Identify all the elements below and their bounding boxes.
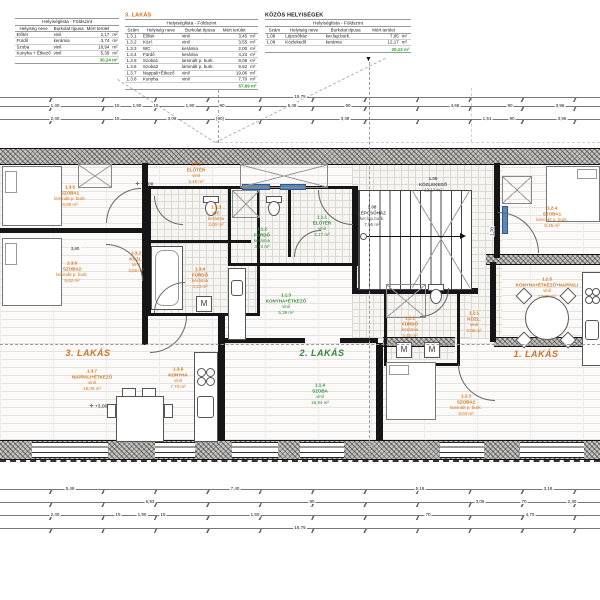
section-marker-icon: ▼ [365, 56, 372, 63]
window [300, 442, 344, 458]
floor-plan: M M M ▼ 1.3.5SZOBA1laminált p. burk.8,08… [0, 0, 600, 600]
room-label-line: 7,95 m² [358, 222, 386, 228]
chair [107, 404, 116, 418]
room-label-line: 7,70 m² [168, 384, 188, 390]
room-label-line: 3,55 m² [128, 268, 143, 274]
round-table [525, 296, 569, 340]
pillow [577, 169, 597, 179]
reference-line [215, 142, 600, 143]
chair [164, 404, 173, 418]
room-label: 1.1.3KONYHA+ÉTKEZŐvinil5,39 m² [266, 292, 306, 315]
room-label-line: 19,06 m² [72, 386, 112, 392]
apartment-separator-wall [376, 343, 383, 440]
stove-icon [206, 377, 215, 386]
bed [386, 362, 436, 420]
stove-icon [592, 296, 600, 304]
interior-wall [288, 189, 291, 257]
room-label: 1.3.7NAPPALI+ÉTKEZŐvinil19,06 m² [72, 368, 112, 391]
stove-icon [206, 368, 215, 377]
room-label: 1.09KÖZLEKEDŐ12,17 m² [419, 176, 447, 194]
interior-wall [490, 262, 496, 342]
window [440, 442, 484, 458]
bed [2, 166, 62, 226]
section-line-horizontal [0, 344, 600, 345]
pillow [5, 171, 17, 193]
wardrobe-icon [240, 164, 328, 188]
room-label: 1.3.6SZOBA2laminált p. burk.9,62 m² [56, 260, 88, 283]
window [232, 442, 278, 458]
stair-arrow-icon [460, 233, 466, 239]
room-label: 1.1.4SZOBAvinil18,94 m² [311, 382, 329, 405]
sink-icon [585, 320, 599, 340]
bed [2, 238, 62, 306]
room-label-line: 8,08 m² [54, 202, 86, 208]
dining-table [116, 396, 164, 442]
kitchen-counter [228, 268, 246, 340]
section-line [218, 90, 219, 143]
exterior-wall-mid-right [486, 254, 600, 265]
room-label-line: 8,03 m² [450, 411, 482, 417]
floorplan-page: { "drawing": { "floor_name": "Földszint"… [0, 0, 600, 600]
stair-walk-line [362, 236, 462, 237]
roof-overhang-dashed [0, 460, 600, 462]
room-label: 1.3.8KONYHAvinil7,70 m² [168, 366, 188, 389]
sink-icon [231, 280, 243, 296]
room-label: 1.1.1ELŐTÉRvinil2,17 m² [313, 214, 331, 237]
roof-edge-dashed [117, 79, 215, 143]
room-label: 1.3.4FÜRDŐkerámia4,23 m² [192, 266, 208, 289]
elevation-marker: ✛ +3,00 [89, 403, 107, 409]
pillow [5, 243, 17, 265]
room-label-line: 9,62 m² [56, 278, 88, 284]
room-label-line: 3,74 m² [254, 244, 270, 250]
apartment-title: 2. LAKÁS [299, 348, 344, 358]
interior-wall [0, 228, 148, 233]
sink-icon [197, 396, 214, 418]
room-label-line: 17,27 m² [516, 294, 578, 300]
kitchen-counter [582, 272, 600, 366]
room-label-line: 4,45 m² [402, 333, 418, 339]
shower-icon [232, 190, 260, 218]
room-label: 1.3.1ELŐTÉRvinil3,45 m² [187, 161, 205, 184]
stair-cross-lines [412, 190, 470, 288]
chair [142, 388, 156, 397]
room-label-line: 8,45 m² [536, 223, 568, 229]
stove-icon [197, 377, 206, 386]
room-label: 1.3.3WCkerámia2,00 m² [208, 204, 224, 227]
room-label: 1.1.2FÜRDŐkerámia3,74 m² [254, 226, 270, 249]
room-label: 1.3.5SZOBA1laminált p. burk.8,08 m² [54, 184, 86, 207]
roof-edge-dashed [215, 58, 386, 143]
stove-icon [197, 368, 206, 377]
interior-wall [340, 338, 378, 343]
apartment-title: 3. LAKÁS [65, 348, 110, 358]
room-label: 1.2.4SZOBA1laminált p. burk.8,45 m² [536, 205, 568, 228]
room-label-line: 3,45 m² [187, 179, 205, 185]
pillow [389, 365, 409, 375]
section-line [369, 62, 370, 458]
stove-icon [592, 288, 600, 296]
reference-line [471, 88, 472, 142]
room-label: 1.2.2FÜRDŐkerámia4,45 m² [402, 315, 418, 338]
room-label-line: 3,06 m² [466, 328, 481, 334]
room-label: 1.2.1KÖZL.vinil3,06 m² [466, 310, 481, 333]
room-label-line: 12,17 m² [419, 188, 447, 194]
washing-machine-icon: M [196, 296, 212, 312]
window [32, 442, 108, 458]
room-label-line: 2,17 m² [313, 232, 331, 238]
apartment-separator-wall [218, 315, 225, 440]
room-label-line: 5,39 m² [266, 310, 306, 316]
room-label-line: 2,00 m² [208, 222, 224, 228]
room-label: 1.08LÉPCSŐHÁZker.lap.burk.7,95 m² [358, 204, 386, 227]
wardrobe-icon [502, 176, 532, 204]
window [155, 442, 195, 458]
walk-line-start [360, 233, 367, 240]
room-label-line: 18,94 m² [311, 400, 329, 406]
exterior-wall-top [0, 148, 600, 165]
room-label-line: 4,23 m² [192, 284, 208, 290]
room-label: 1.3.2KÖZL.vinil3,55 m² [128, 250, 143, 273]
window [520, 442, 584, 458]
room-label: 1.2.5KONYHA+ÉTKEZŐ+NAPPALIvinil17,27 m² [516, 276, 578, 299]
apartment-title: 1. LAKÁS [513, 349, 558, 359]
elevation-marker: ✛ +3,00 [135, 181, 153, 187]
chair [122, 388, 136, 397]
room-label: 1.2.3SZOBA2laminált p. burk.8,03 m² [450, 393, 482, 416]
